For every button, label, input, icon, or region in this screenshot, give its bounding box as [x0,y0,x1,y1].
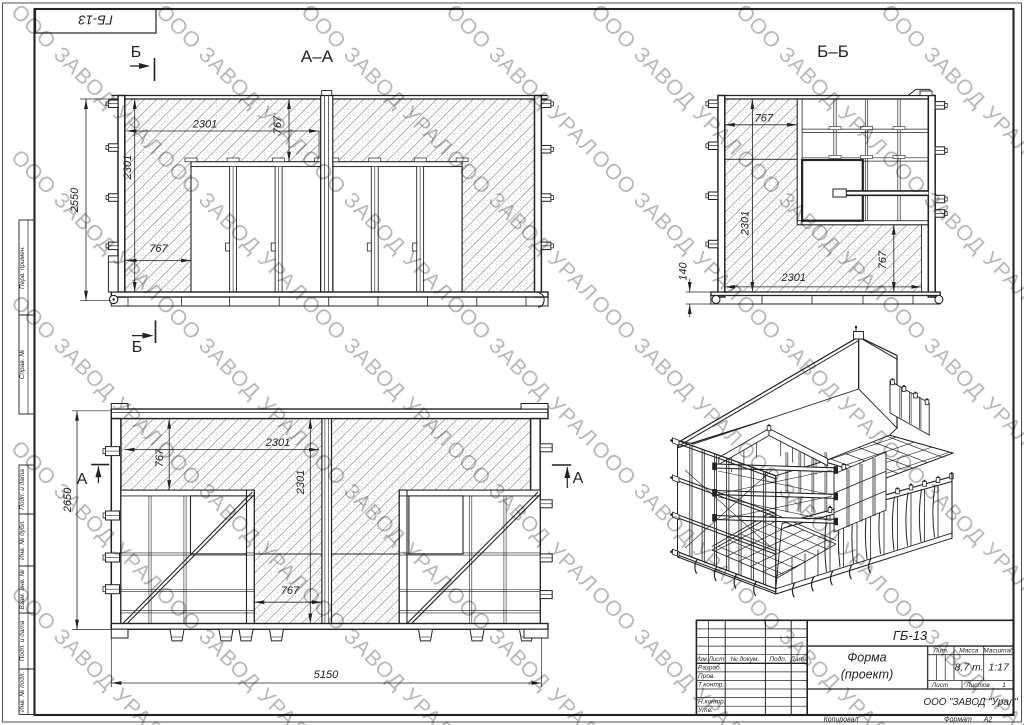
svg-text:А2: А2 [983,717,993,724]
svg-text:767: 767 [755,112,774,124]
svg-text:Инв. № дубл.: Инв. № дубл. [18,520,26,560]
svg-text:Разраб.: Разраб. [698,664,722,672]
svg-text:Изм.: Изм. [696,657,709,663]
svg-text:767: 767 [877,250,889,269]
svg-text:2301: 2301 [295,470,307,495]
svg-text:Масштаб: Масштаб [983,647,1014,655]
svg-text:2301: 2301 [740,211,752,236]
svg-text:Формат: Формат [944,717,972,724]
svg-text:2301: 2301 [780,272,805,284]
svg-text:А: А [573,470,584,487]
svg-text:2301: 2301 [122,155,134,180]
svg-text:Б: Б [132,339,143,356]
svg-text:Подп. и дата: Подп. и дата [18,620,26,661]
svg-text:А–А: А–А [301,47,334,66]
svg-text:№ докум.: № докум. [731,655,760,663]
svg-text:Лист: Лист [931,682,949,689]
svg-text:ГБ-13: ГБ-13 [78,13,113,28]
svg-text:Б: Б [131,44,142,61]
svg-text:Подп. и дата: Подп. и дата [18,469,26,510]
svg-text:Лист: Лист [708,657,724,663]
svg-text:1:17: 1:17 [988,662,1010,674]
svg-text:767: 767 [149,243,168,255]
svg-text:5150: 5150 [314,669,339,681]
svg-text:140: 140 [678,261,690,280]
svg-text:А: А [77,471,88,488]
svg-text:(проект): (проект) [841,668,894,682]
svg-text:Форма: Форма [847,651,886,665]
svg-text:Справ. №: Справ. № [19,350,26,380]
svg-text:Инв. № подл.: Инв. № подл. [18,671,26,712]
svg-text:2301: 2301 [192,119,217,131]
svg-text:1: 1 [1002,682,1006,689]
svg-text:Перв. примен.: Перв. примен. [19,246,26,289]
svg-text:Подп.: Подп. [769,655,786,663]
svg-text:Б–Б: Б–Б [817,42,849,61]
